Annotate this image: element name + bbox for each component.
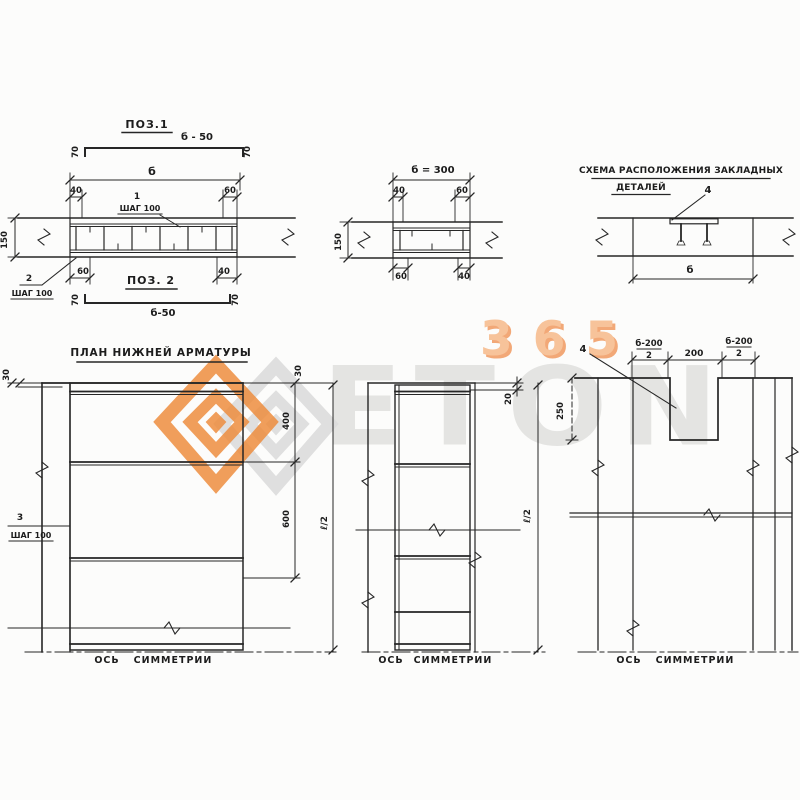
section-a-bottom40: 40	[218, 267, 230, 277]
plan-right-frac-left-num: б-200	[635, 338, 662, 349]
pos1-bar-detail: ПОЗ.1 б - 50 70 70	[71, 118, 253, 158]
plan-middle-axis-word1: ОСЬ	[378, 655, 403, 666]
reinforcement-drawing: ПОЗ.1 б - 50 70 70 б 40 60 1	[0, 0, 800, 800]
plan-lower-reinforcement: ПЛАН НИЖНЕЙ АРМАТУРЫ 30 30	[2, 346, 337, 666]
plan-left-axis-word2: СИММЕТРИИ	[134, 655, 213, 666]
bar1-step: ШАГ 100	[120, 204, 161, 213]
pos1-length-label: б - 50	[181, 131, 213, 143]
bar3-step: ШАГ 100	[11, 531, 52, 540]
pos2-title: ПОЗ. 2	[127, 274, 175, 287]
pos1-title: ПОЗ.1	[125, 118, 168, 131]
scheme-detail-mark: 4	[705, 185, 712, 196]
section-b-width: б = 300	[411, 164, 454, 176]
plan-left-dim600: 600	[282, 510, 292, 528]
section-a-dim40: 40	[70, 186, 82, 196]
plan-right-detail-mark: 4	[580, 344, 587, 355]
section-b-bottom60: 60	[395, 272, 407, 282]
plan-right-axis-word1: ОСЬ	[616, 655, 641, 666]
plan-right-embedded-detail: б-200 2 200 б-200 2 4 250	[556, 336, 798, 666]
section-a-dim60: 60	[224, 186, 236, 196]
scheme-title-line1: СХЕМА РАСПОЛОЖЕНИЯ ЗАКЛАДНЫХ	[579, 166, 783, 176]
pos1-hook-right: 70	[243, 146, 253, 158]
bar1-mark: 1	[134, 192, 140, 202]
section-a-width: б	[148, 165, 156, 178]
plan-middle-dim20: 20	[504, 393, 514, 405]
section-b-bottom40: 40	[458, 272, 470, 282]
plan-right-axis-word2: СИММЕТРИИ	[656, 655, 735, 666]
bar2-mark: 2	[26, 274, 32, 284]
pos2-hook-right: 70	[231, 294, 241, 306]
plan-left-dim30-left: 30	[2, 369, 12, 381]
plan-right-dim200: 200	[685, 349, 704, 359]
plan-left-dim30-right: 30	[294, 365, 304, 377]
plan-right-dim250: 250	[556, 402, 566, 420]
drawing-sheet: ETON 365 ПОЗ.1 б - 50	[0, 0, 800, 800]
section-a-bottom60: 60	[77, 267, 89, 277]
scheme-width: б	[687, 264, 694, 276]
cross-section-b: б = 300 40 60 150	[334, 164, 502, 282]
pos2-bar-detail: ПОЗ. 2 70 70 б-50	[71, 274, 241, 319]
plan-left-dim400: 400	[282, 412, 292, 430]
pos2-hook-left: 70	[71, 294, 81, 306]
plan-middle-strip: 20 ℓ/2 ОСЬ СИММЕТРИИ	[356, 377, 545, 666]
section-b-dim40: 40	[393, 186, 405, 196]
plan-right-frac-right-den: 2	[736, 349, 742, 359]
section-a-height: 150	[0, 231, 10, 249]
embedded-plate	[670, 219, 718, 245]
plan-middle-axis-word2: СИММЕТРИИ	[414, 655, 493, 666]
plan-left-half-length: ℓ/2	[320, 516, 330, 531]
plan-right-frac-left-den: 2	[646, 351, 652, 361]
pos1-hook-left: 70	[71, 146, 81, 158]
scheme-title-line2: ДЕТАЛЕЙ	[616, 181, 666, 193]
plan-middle-half-length: ℓ/2	[523, 509, 533, 524]
plan-left-axis-word1: ОСЬ	[94, 655, 119, 666]
embedded-parts-scheme: СХЕМА РАСПОЛОЖЕНИЯ ЗАКЛАДНЫХ ДЕТАЛЕЙ 4	[579, 166, 795, 283]
bar3-mark: 3	[17, 513, 23, 523]
section-b-dim60: 60	[456, 186, 468, 196]
plan-left-title: ПЛАН НИЖНЕЙ АРМАТУРЫ	[70, 346, 251, 359]
pos2-length-label: б-50	[150, 307, 175, 319]
bar2-step: ШАГ 100	[12, 289, 53, 298]
section-b-height: 150	[334, 233, 344, 251]
plan-right-frac-right-num: б-200	[725, 336, 752, 347]
